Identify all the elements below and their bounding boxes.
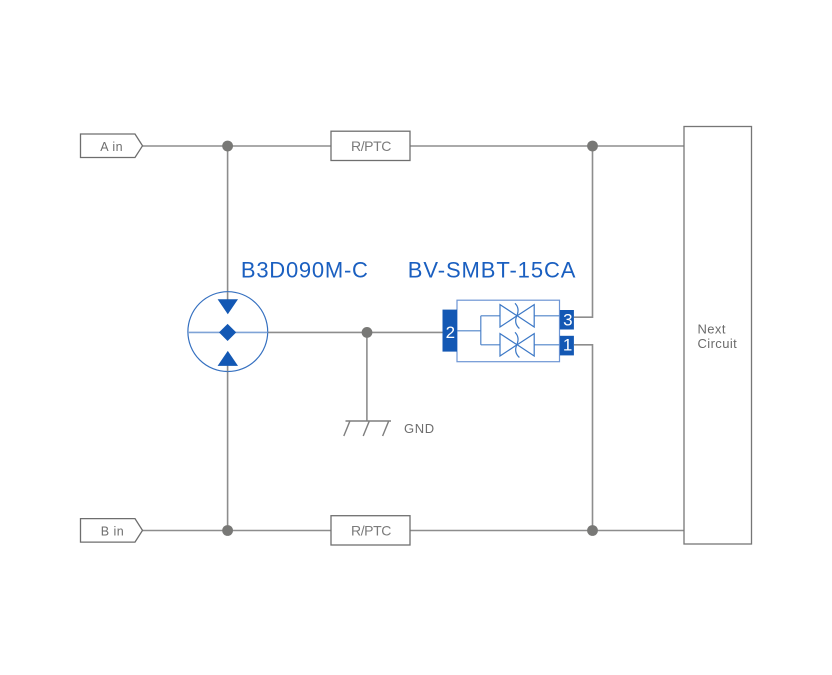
svg-text:BV-SMBT-15CA: BV-SMBT-15CA [408,258,577,283]
svg-text:3: 3 [563,311,572,330]
svg-text:2: 2 [446,323,455,342]
svg-text:Circuit: Circuit [698,336,738,351]
svg-text:R/PTC: R/PTC [351,523,391,539]
svg-text:A in: A in [100,140,123,154]
svg-text:B in: B in [101,524,125,538]
svg-text:Next: Next [698,322,726,337]
svg-text:GND: GND [404,421,435,436]
svg-text:1: 1 [563,335,572,354]
svg-text:B3D090M-C: B3D090M-C [241,258,369,283]
svg-text:R/PTC: R/PTC [351,138,391,154]
